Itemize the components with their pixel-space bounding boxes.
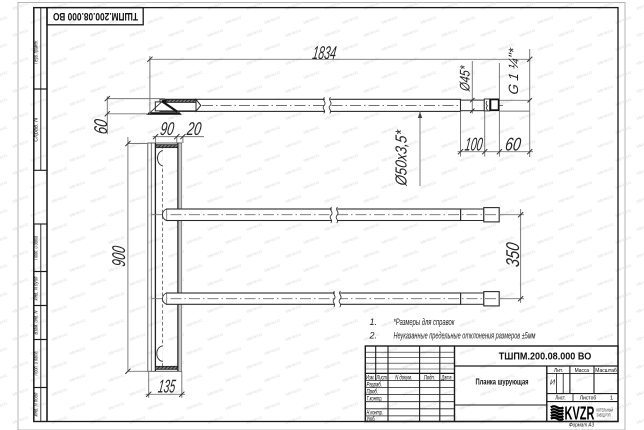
svg-text:Подп.: Подп. <box>424 374 435 381</box>
svg-text:Листоб: Листоб <box>580 396 597 402</box>
svg-text:1.: 1. <box>370 317 378 327</box>
svg-text:Взам. инв. N: Взам. инв. N <box>34 310 40 334</box>
svg-text:Перв. примен.: Перв. примен. <box>34 40 40 64</box>
svg-text:*Размеры для справок: *Размеры для справок <box>394 317 455 327</box>
svg-text:Разраб.: Разраб. <box>367 381 383 388</box>
svg-text:Утб.: Утб. <box>366 416 376 423</box>
svg-text:1: 1 <box>610 396 613 402</box>
svg-text:Масса: Масса <box>575 368 590 374</box>
svg-text:Формат А3: Формат А3 <box>569 422 595 428</box>
svg-text:Инв. N дубл: Инв. N дубл <box>34 277 40 301</box>
svg-text:N докум.: N докум. <box>395 374 412 381</box>
svg-text:Подп. и дата: Подп. и дата <box>34 352 40 376</box>
svg-text:Изм.: Изм. <box>366 374 375 381</box>
svg-text:900: 900 <box>108 244 129 267</box>
svg-text:KVZR: KVZR <box>565 403 595 424</box>
svg-text:Инв. N подл: Инв. N подл <box>34 393 40 417</box>
svg-text:Ø45*: Ø45* <box>457 64 473 92</box>
svg-text:1834: 1834 <box>311 42 337 63</box>
svg-text:Планка шурующая: Планка шурующая <box>476 377 529 387</box>
svg-text:Масштаб: Масштаб <box>595 368 617 374</box>
svg-text:Проб.: Проб. <box>367 388 379 395</box>
svg-text:Подп. и дата: Подп. и дата <box>34 236 40 260</box>
svg-text:ТШПМ.200.08.000 ВО: ТШПМ.200.08.000 ВО <box>499 351 592 363</box>
svg-text:350: 350 <box>502 241 523 268</box>
svg-text:Ø50х3,5*: Ø50х3,5* <box>393 128 411 187</box>
svg-text:Лист.: Лист. <box>555 396 566 402</box>
svg-text:Дата: Дата <box>441 374 452 381</box>
svg-text:Неуказанные предельные отклоне: Неуказанные предельные отклонения размер… <box>394 331 536 341</box>
svg-text:ЗАВОД РЭП: ЗАВОД РЭП <box>597 413 611 418</box>
svg-text:G 1 ¼"*: G 1 ¼"* <box>506 47 521 96</box>
svg-text:Лист: Лист <box>376 374 387 381</box>
svg-text:ТШПМ.200.08.000 ВО: ТШПМ.200.08.000 ВО <box>53 10 138 22</box>
svg-text:Т.контр.: Т.контр. <box>367 396 383 403</box>
svg-text:2.: 2. <box>369 331 378 341</box>
svg-text:100: 100 <box>464 133 485 154</box>
svg-text:Лит.: Лит. <box>554 368 563 374</box>
svg-text:135: 135 <box>157 375 177 396</box>
svg-text:Справ. N: Справ. N <box>34 118 40 142</box>
